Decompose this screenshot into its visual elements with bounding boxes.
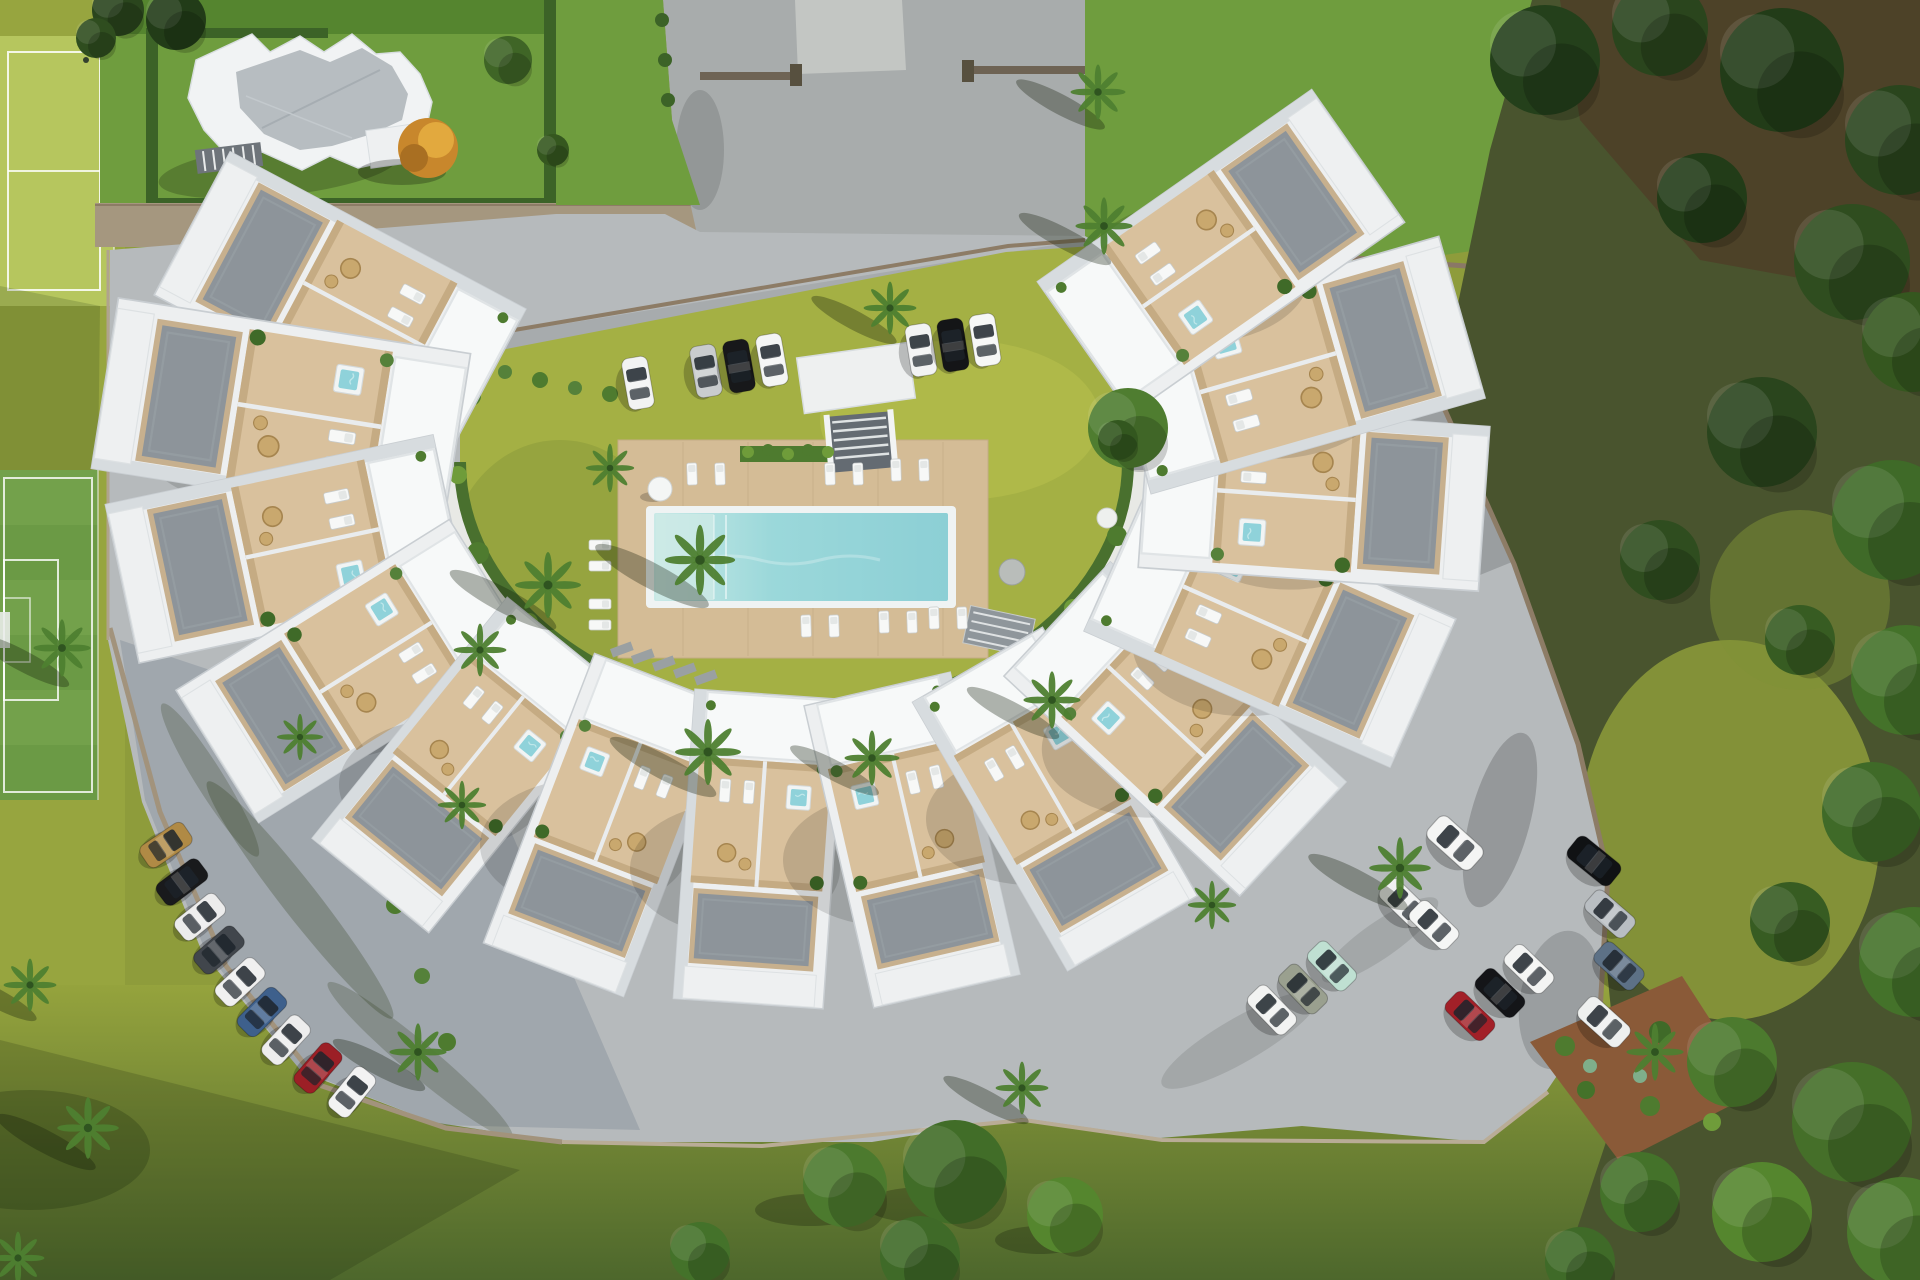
sun-lounger (879, 611, 890, 633)
sun-lounger (825, 463, 836, 485)
palm-tree (665, 525, 735, 595)
palm-tree (57, 1097, 119, 1159)
patio-table (999, 559, 1025, 585)
bush (1555, 1036, 1575, 1056)
court-shade (0, 286, 100, 470)
sun-lounger (957, 607, 968, 629)
hedge (146, 28, 158, 210)
sun-lounger (853, 463, 864, 485)
palm-tree (4, 959, 57, 1012)
gate-pillar (790, 64, 802, 86)
site-plan-render (0, 0, 1920, 1280)
patio-table (648, 477, 672, 501)
palm-tree (1369, 837, 1431, 899)
bush (658, 53, 672, 67)
bush (1583, 1059, 1597, 1073)
palm-tree (438, 781, 486, 829)
tree (670, 1222, 730, 1280)
sun-lounger (589, 620, 611, 630)
sun-lounger (687, 463, 698, 485)
palm-tree (277, 714, 323, 760)
pitch-stripe (0, 690, 98, 745)
bush (661, 93, 675, 107)
person (83, 57, 89, 63)
bush (498, 365, 512, 379)
bush (414, 968, 430, 984)
palm-tree (675, 719, 741, 785)
sun-lounger (891, 459, 902, 481)
palm-tree (1188, 881, 1236, 929)
palm-tree (515, 552, 581, 618)
bush (802, 444, 814, 456)
sun-lounger (907, 611, 918, 633)
palm-tree (586, 444, 634, 492)
gate-pillar (962, 60, 974, 82)
palm-tree (1071, 65, 1126, 120)
bush (762, 444, 774, 456)
sun-lounger (829, 615, 840, 637)
bush (655, 13, 669, 27)
palm-tree (1075, 197, 1132, 254)
patio-table (1097, 508, 1117, 528)
palm-tree (996, 1062, 1049, 1115)
palm-tree (1626, 1023, 1683, 1080)
sun-lounger (919, 459, 930, 481)
bush (782, 448, 794, 460)
bush (602, 386, 618, 402)
garden-wall (700, 72, 800, 80)
garden-wall (972, 66, 1085, 74)
sun-lounger (801, 615, 812, 637)
palm-tree (864, 282, 917, 335)
pitch-stripe (0, 580, 98, 635)
bush (532, 372, 548, 388)
bush (742, 446, 754, 458)
tree (1847, 1177, 1920, 1280)
bush (438, 1033, 456, 1051)
bush (1703, 1113, 1721, 1131)
hedge (544, 0, 556, 210)
sun-lounger (929, 607, 940, 629)
bush (1640, 1096, 1660, 1116)
bush (1577, 1081, 1595, 1099)
autumn-tree (400, 144, 428, 172)
palm-tree (389, 1023, 446, 1080)
sun-lounger (589, 599, 611, 609)
bush (568, 381, 582, 395)
palm-tree (33, 619, 90, 676)
aerial-render-page (0, 0, 1920, 1280)
driveway-apron (795, 0, 906, 74)
bush (822, 446, 834, 458)
sun-lounger (715, 463, 726, 485)
palm-tree (845, 731, 900, 786)
palm-tree (1023, 671, 1080, 728)
palm-tree (454, 624, 507, 677)
